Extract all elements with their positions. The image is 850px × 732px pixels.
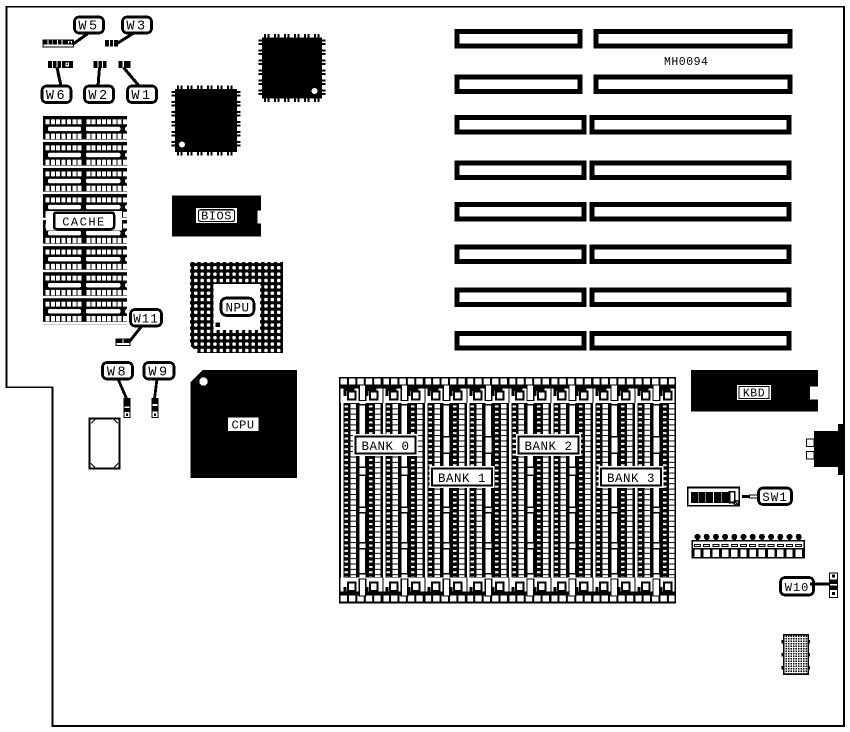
svg-text:BANK 2: BANK 2 bbox=[524, 440, 572, 454]
svg-text:SW1: SW1 bbox=[762, 491, 788, 505]
svg-text:CACHE: CACHE bbox=[62, 216, 106, 230]
svg-text:KBD: KBD bbox=[743, 388, 765, 401]
svg-text:W8: W8 bbox=[107, 366, 128, 381]
svg-text:W11: W11 bbox=[133, 313, 159, 327]
svg-text:CPU: CPU bbox=[231, 419, 254, 433]
svg-text:W3: W3 bbox=[126, 20, 147, 35]
svg-text:BIOS: BIOS bbox=[201, 210, 232, 224]
svg-text:BANK 0: BANK 0 bbox=[361, 440, 409, 454]
svg-text:BANK 1: BANK 1 bbox=[438, 472, 486, 486]
svg-text:MH0094: MH0094 bbox=[664, 56, 708, 69]
svg-text:NPU: NPU bbox=[225, 302, 249, 316]
svg-text:W1: W1 bbox=[131, 89, 152, 104]
svg-text:W6: W6 bbox=[46, 89, 67, 104]
svg-text:BANK 3: BANK 3 bbox=[607, 472, 655, 486]
svg-text:W2: W2 bbox=[88, 89, 109, 104]
svg-text:W5: W5 bbox=[78, 20, 99, 35]
svg-text:W9: W9 bbox=[148, 366, 169, 381]
svg-text:W10: W10 bbox=[785, 581, 810, 595]
